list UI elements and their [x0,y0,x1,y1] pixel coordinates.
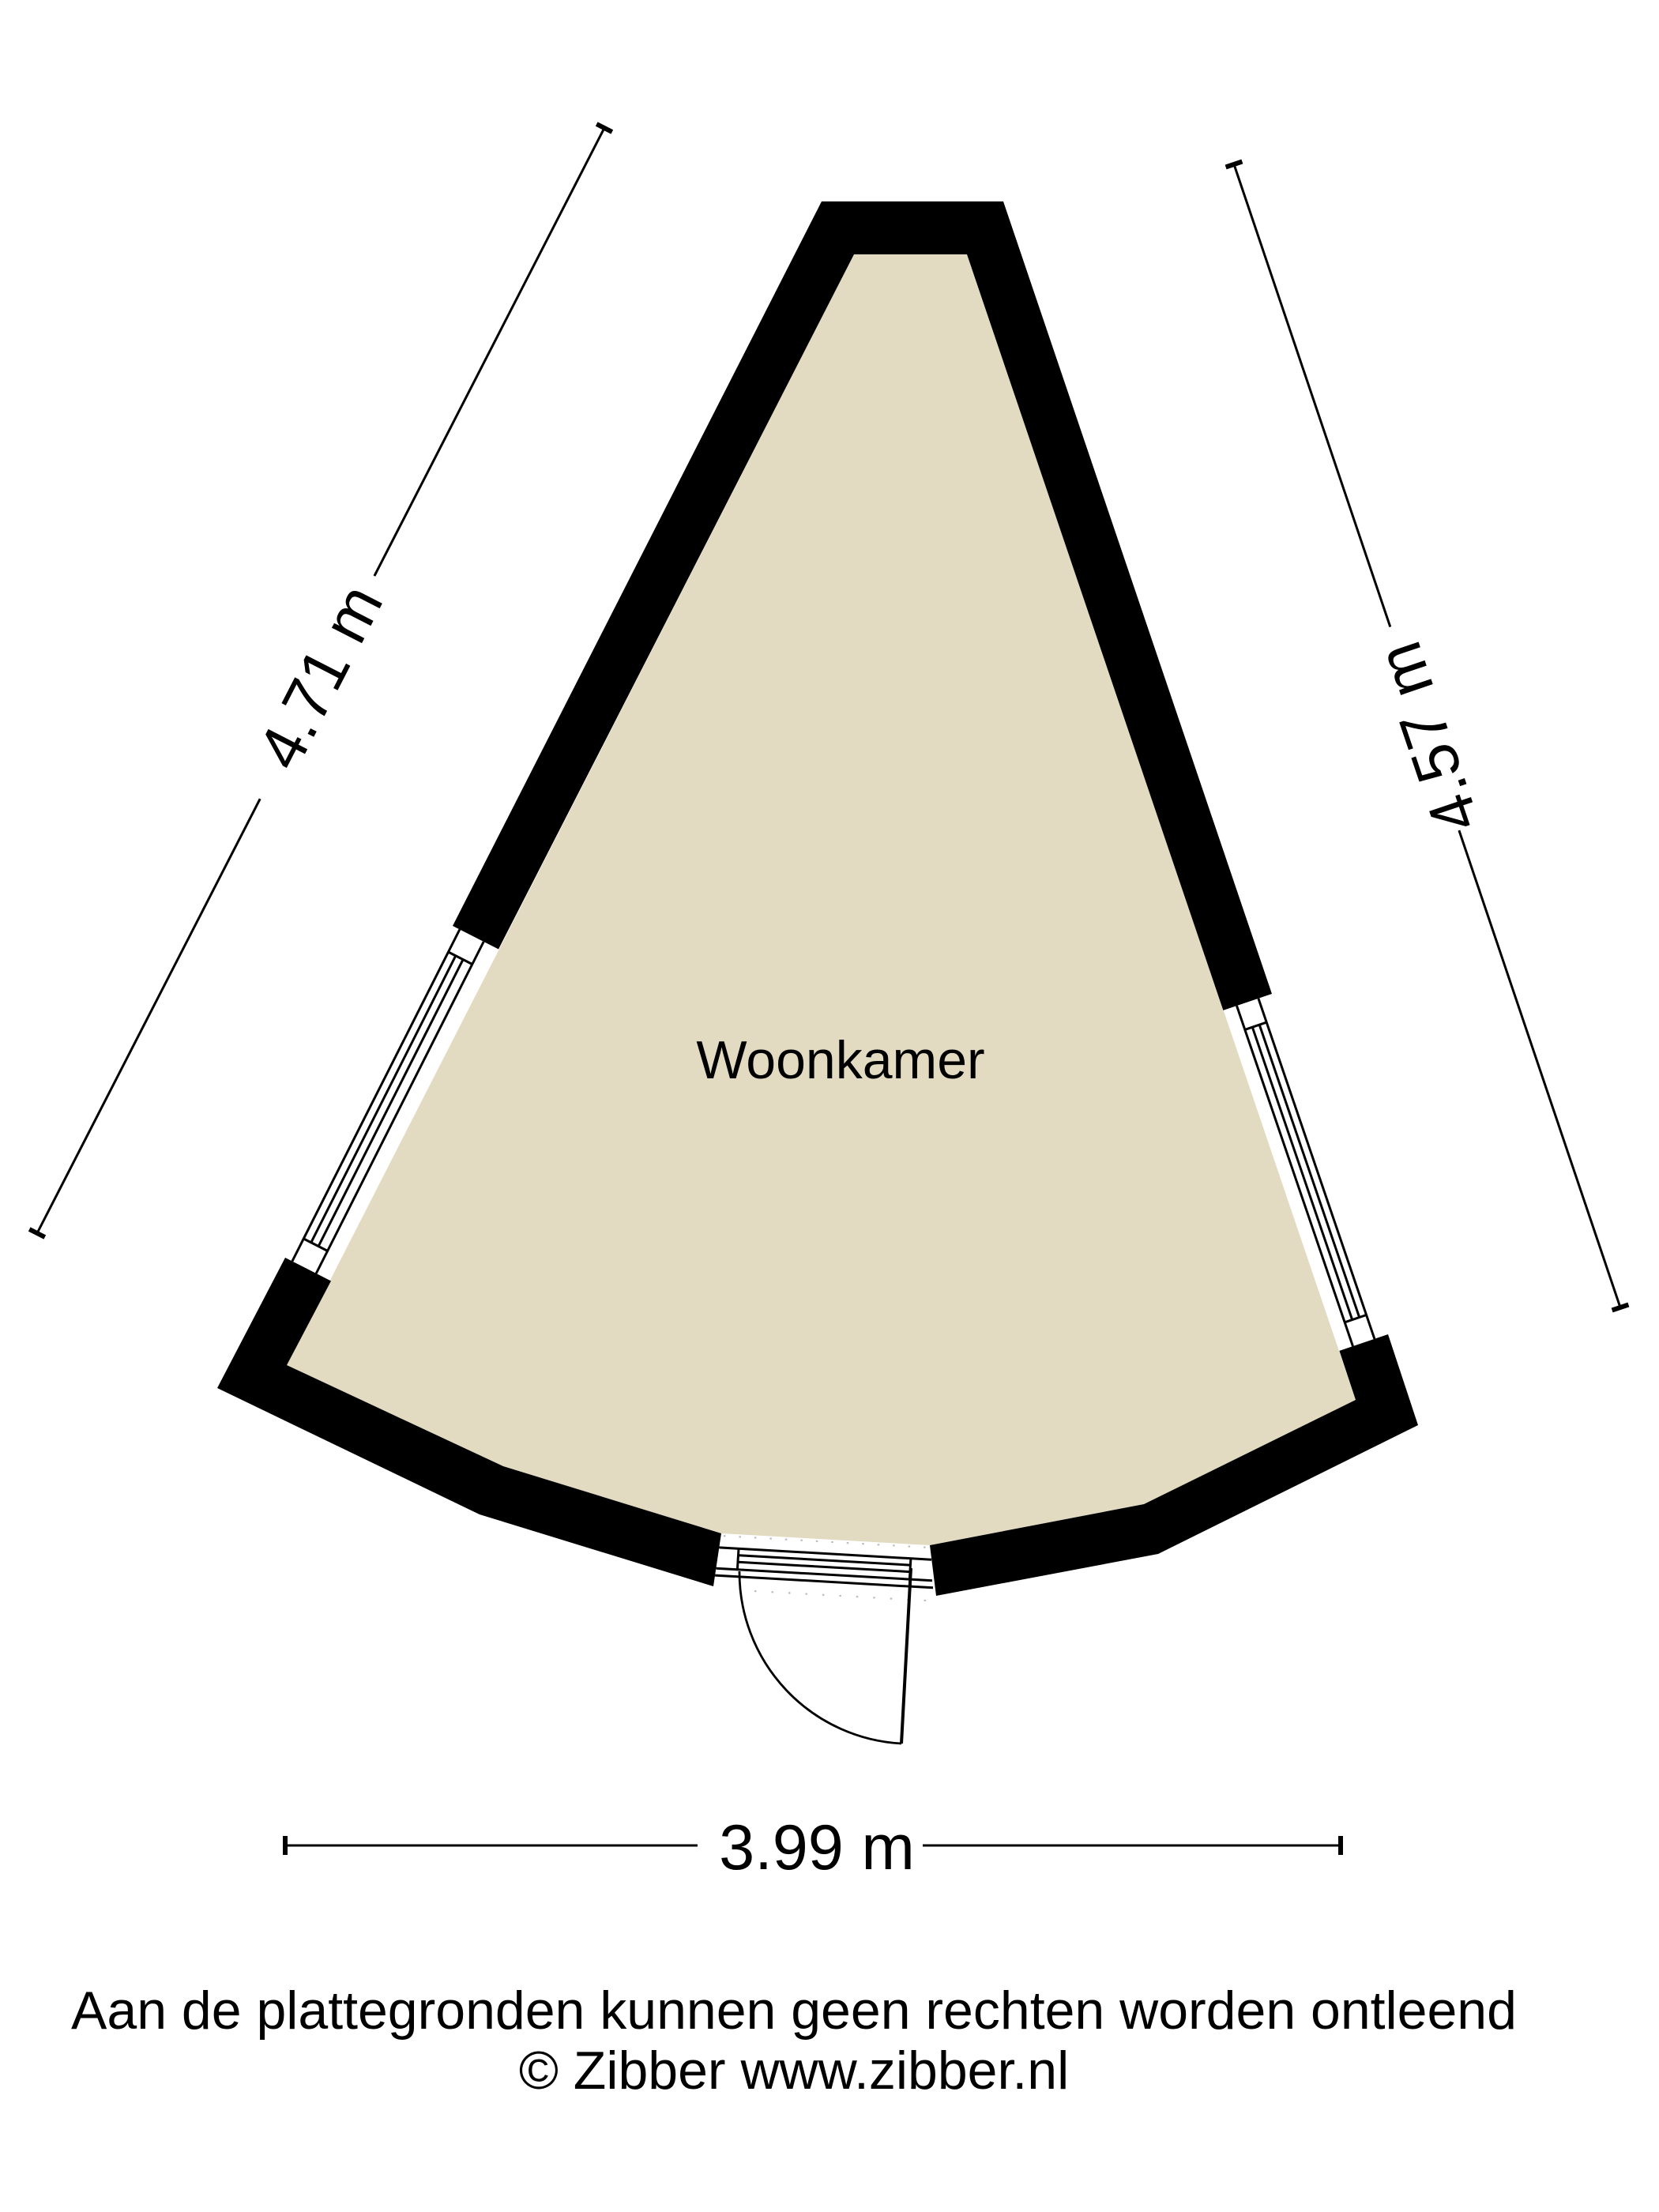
svg-text:3.99 m: 3.99 m [719,1812,915,1883]
svg-text:Aan de plattegronden kunnen ge: Aan de plattegronden kunnen geen rechten… [71,1981,1517,2041]
svg-text:© Zibber www.zibber.nl: © Zibber www.zibber.nl [519,2041,1069,2101]
svg-text:Woonkamer: Woonkamer [696,1030,984,1090]
